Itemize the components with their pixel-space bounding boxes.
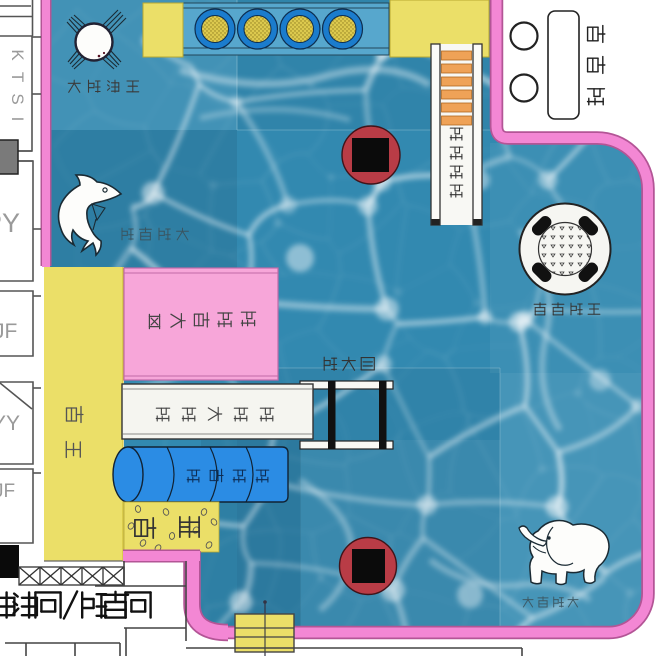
svg-text:T: T (8, 72, 27, 82)
svg-text:K: K (8, 49, 27, 61)
svg-text:JF: JF (0, 481, 15, 502)
svg-text:PY: PY (0, 208, 20, 238)
svg-text:YY: YY (0, 412, 20, 435)
svg-text:I: I (8, 117, 27, 122)
svg-text:S: S (8, 93, 27, 104)
svg-text:JF: JF (0, 320, 17, 343)
